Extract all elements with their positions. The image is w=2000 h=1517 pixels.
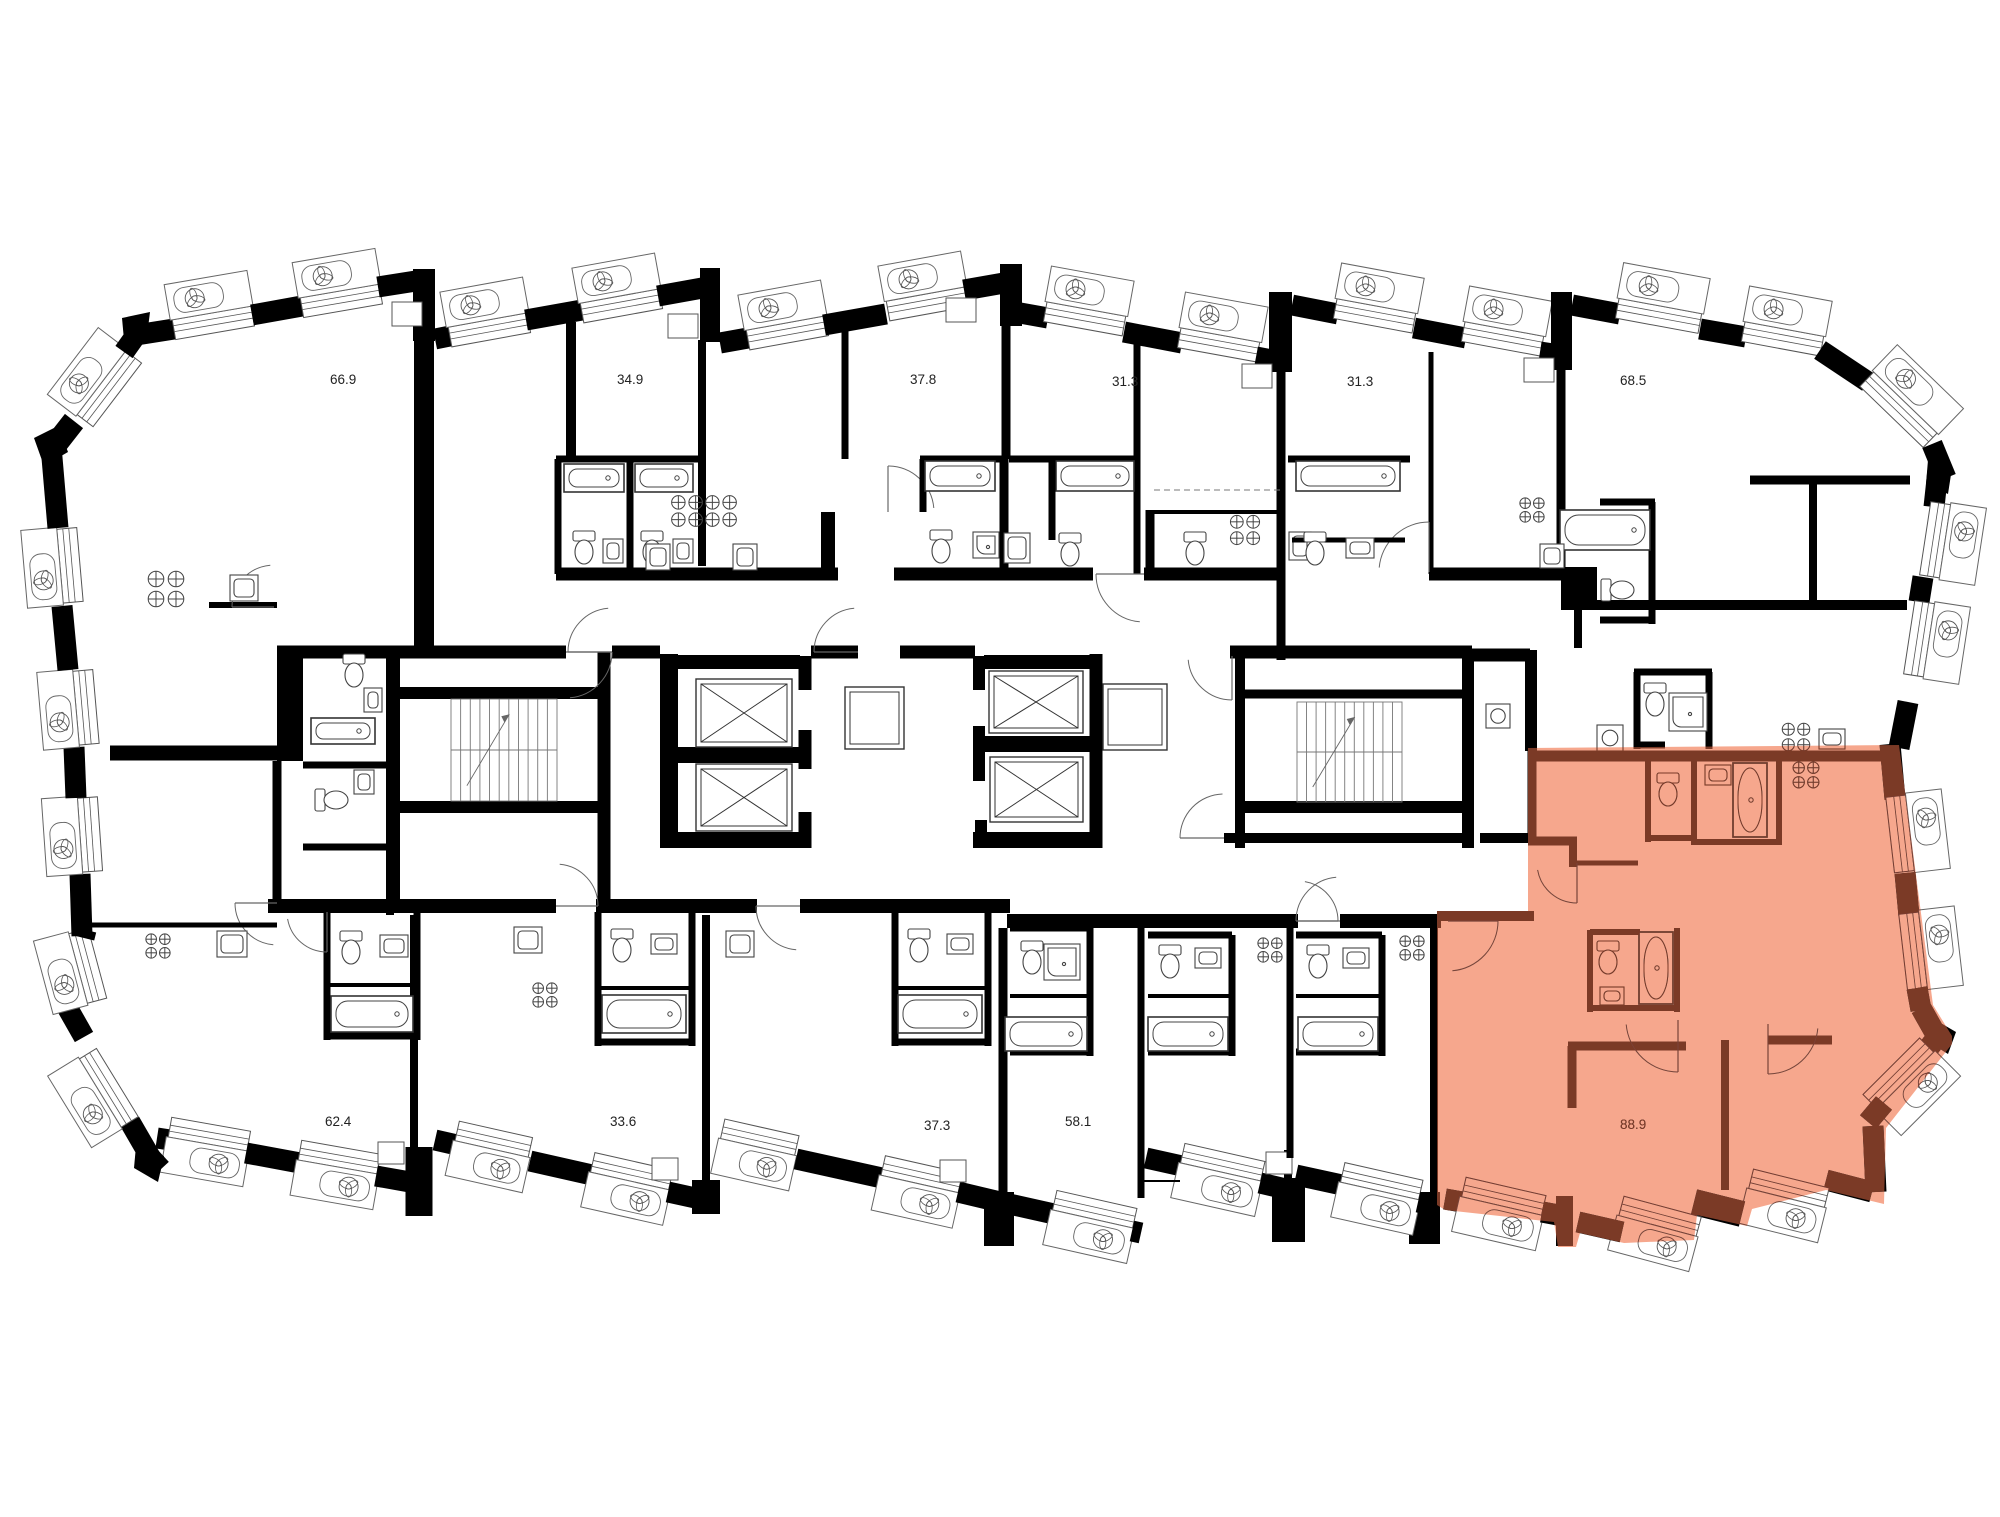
svg-text:66.9: 66.9: [330, 372, 356, 387]
svg-text:62.4: 62.4: [325, 1114, 352, 1129]
svg-text:37.8: 37.8: [910, 372, 936, 387]
svg-text:37.3: 37.3: [924, 1118, 950, 1133]
svg-text:34.9: 34.9: [617, 372, 643, 387]
svg-text:33.6: 33.6: [610, 1114, 636, 1129]
svg-text:58.1: 58.1: [1065, 1114, 1091, 1129]
svg-text:31.3: 31.3: [1347, 374, 1373, 389]
svg-text:68.5: 68.5: [1620, 373, 1646, 388]
svg-text:31.3: 31.3: [1112, 374, 1138, 389]
